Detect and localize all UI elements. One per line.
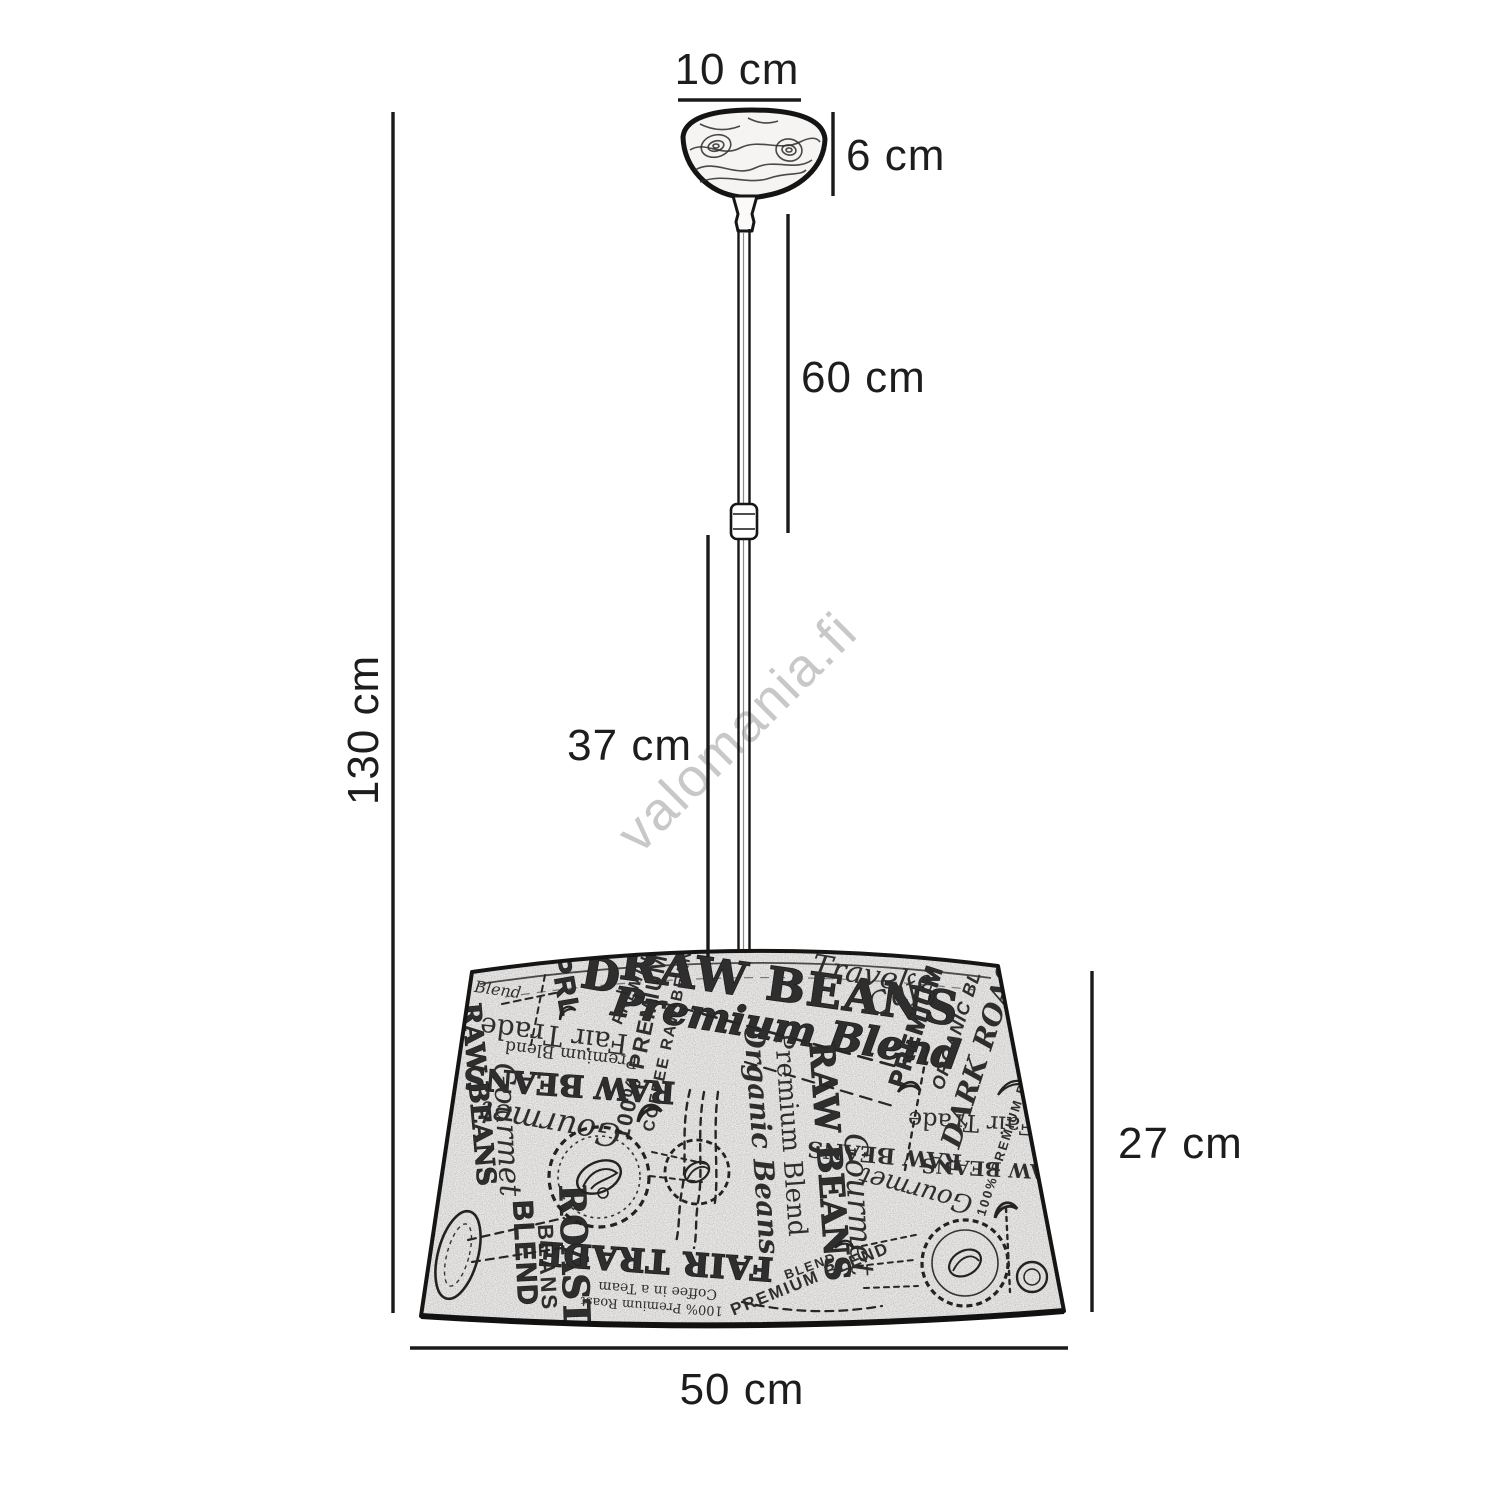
dim-label-total-height: 130 cm [339, 655, 388, 805]
dimension-total-height: 130 cm [339, 112, 393, 1313]
dim-label-shade-height: 27 cm [1118, 1119, 1243, 1168]
dimension-shade-diameter: 50 cm [410, 1348, 1068, 1414]
pattern-text: Gourmet [486, 1062, 528, 1199]
dim-label-cord-length: 60 cm [801, 353, 926, 402]
dim-label-canopy-height: 6 cm [846, 131, 945, 180]
lampshade: RAW BEANS Premium Blend Fair Trade Premi… [400, 925, 1090, 1350]
dimension-canopy-width: 10 cm [675, 45, 801, 100]
dim-label-shade-diameter: 50 cm [680, 1365, 805, 1414]
lamp-dimension-diagram: valomania.fi [0, 0, 1500, 1500]
dim-label-canopy-width: 10 cm [675, 45, 800, 94]
diagram-svg: valomania.fi [0, 0, 1500, 1500]
dimension-shade-height: 27 cm [1092, 971, 1243, 1312]
dimension-rod-length: 37 cm [567, 535, 708, 957]
suspension-rod [731, 229, 757, 968]
canopy-nipple [733, 196, 757, 231]
rod-connector [731, 504, 757, 539]
ceiling-canopy [683, 110, 825, 231]
dim-label-rod-length: 37 cm [567, 721, 692, 770]
dimension-canopy-height: 6 cm [833, 112, 945, 196]
dimension-cord-length: 60 cm [788, 214, 926, 533]
